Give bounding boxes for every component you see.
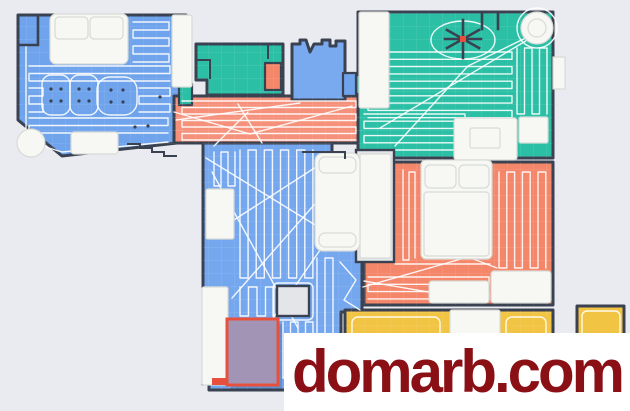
vacuum-map-screen: domarb.com [0, 0, 630, 411]
fan-hub [460, 36, 466, 42]
dock-icon [521, 12, 553, 44]
pillow [459, 165, 489, 188]
bathroom-radiator [265, 63, 281, 90]
debris-dot [158, 95, 161, 98]
chair-dot [77, 99, 80, 102]
chair-dot [109, 100, 112, 103]
door-leaf [553, 57, 565, 89]
tv-console [71, 132, 118, 154]
chair-dot [59, 99, 62, 102]
sofa-cushion [90, 17, 123, 39]
watermark-text: domarb.com [292, 342, 622, 402]
dresser-teal [519, 117, 548, 143]
bench [429, 281, 489, 303]
watermark: domarb.com [284, 333, 630, 411]
chair-dot [121, 100, 124, 103]
table-teal [454, 118, 517, 160]
sofa-armrest [319, 157, 356, 173]
dresser-orange [491, 271, 551, 303]
chair-dot [87, 87, 90, 90]
room-toilet[interactable] [292, 40, 345, 100]
sofa-cushion [55, 17, 88, 39]
no-go-zone[interactable] [227, 319, 278, 385]
round-table [17, 129, 45, 157]
no-go-handle[interactable] [212, 378, 228, 385]
chair-dot [77, 87, 80, 90]
chair-dot [49, 99, 52, 102]
wardrobe-middle [360, 154, 391, 258]
chair-dot [59, 87, 62, 90]
cabinet-tall [172, 15, 192, 87]
chair-dot [87, 99, 90, 102]
cabinet-bottom [202, 287, 228, 385]
chair-dot [109, 88, 112, 91]
storage-box [277, 286, 309, 316]
sofa-armrest [319, 233, 356, 247]
chair-dot [121, 88, 124, 91]
debris-dot [133, 125, 136, 128]
debris-dot [146, 124, 149, 127]
wardrobe-teal [359, 12, 389, 108]
shelf [206, 189, 234, 239]
pillow [425, 165, 456, 188]
chair-dot [49, 87, 52, 90]
